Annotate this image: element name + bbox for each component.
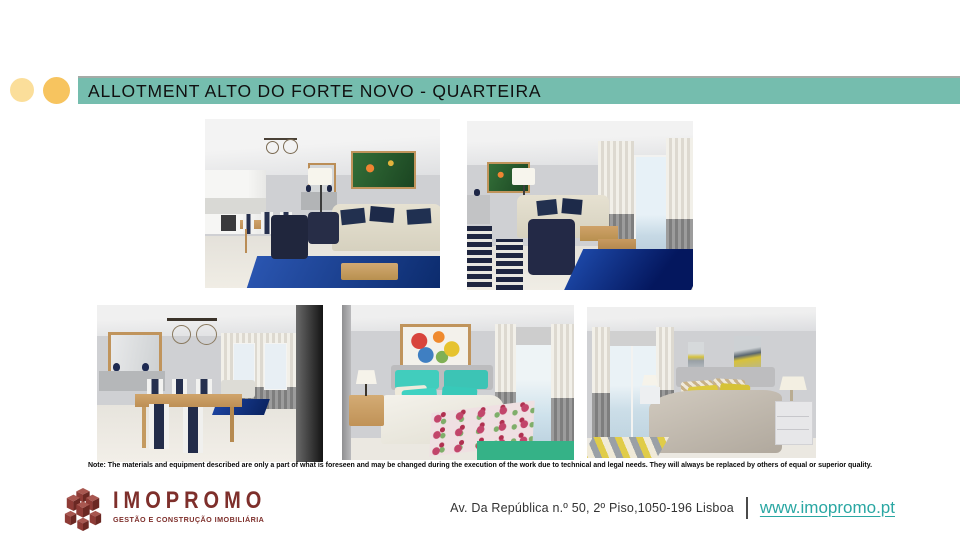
carpet-green bbox=[477, 441, 574, 460]
render-living-room-balcony bbox=[467, 121, 693, 290]
chandelier-orb bbox=[196, 324, 217, 345]
website-link[interactable]: www.imopromo.pt bbox=[760, 498, 895, 518]
logo-text: IMOPROMO GESTÃO E CONSTRUÇÃO IMOBILIÁRIA bbox=[113, 486, 266, 524]
vase bbox=[142, 363, 149, 371]
rug-blue bbox=[563, 249, 693, 290]
wall-painting bbox=[400, 324, 471, 370]
window-balcony bbox=[634, 155, 670, 264]
curtain-right-panel bbox=[666, 138, 693, 219]
curtain-panel bbox=[551, 324, 574, 398]
company-logo: IMOPROMO GESTÃO E CONSTRUÇÃO IMOBILIÁRIA bbox=[62, 486, 266, 537]
vase bbox=[113, 363, 120, 371]
accent-circle-dark bbox=[43, 77, 70, 104]
vase bbox=[474, 189, 480, 196]
table-legs bbox=[245, 229, 247, 253]
wall-painting bbox=[351, 151, 416, 189]
render-bedroom-teal bbox=[342, 305, 574, 460]
curtain-panel bbox=[495, 324, 516, 392]
contact-line: Av. Da República n.º 50, 2º Piso,1050-19… bbox=[450, 497, 895, 519]
pendant-orb bbox=[283, 139, 298, 154]
vase bbox=[306, 185, 311, 192]
dining-chair-front bbox=[183, 407, 203, 453]
sofa-pillow bbox=[341, 207, 366, 225]
page-title: ALLOTMENT ALTO DO FORTE NOVO - QUARTEIRA bbox=[88, 81, 541, 102]
accent-circle-light bbox=[10, 78, 34, 102]
curtain-panel bbox=[656, 327, 674, 390]
table-leg bbox=[142, 407, 146, 448]
floor-lamp-shade bbox=[308, 168, 332, 185]
armchair bbox=[528, 219, 575, 275]
brand-tagline: GESTÃO E CONSTRUÇÃO IMOBILIÁRIA bbox=[113, 515, 266, 524]
divider bbox=[746, 497, 748, 519]
render-dining-room bbox=[97, 305, 323, 462]
ceiling bbox=[587, 307, 816, 331]
dining-chair bbox=[467, 226, 492, 287]
sofa-pillow bbox=[407, 208, 432, 225]
cubes-logo-icon bbox=[62, 486, 104, 537]
curtain-panel-lower bbox=[551, 398, 574, 448]
render-living-room-kitchen bbox=[205, 119, 440, 288]
nightstand-left bbox=[640, 387, 661, 404]
window-frame bbox=[631, 331, 633, 440]
chandelier-orb bbox=[172, 325, 191, 344]
disclaimer-note: Note: The materials and equipment descri… bbox=[0, 462, 960, 469]
curtain-panel bbox=[592, 327, 610, 393]
kitchen-backsplash bbox=[205, 198, 266, 213]
wall-partition bbox=[296, 305, 323, 462]
sideboard bbox=[467, 195, 490, 224]
kitchen-oven-icon bbox=[221, 215, 235, 230]
rug-patterned bbox=[587, 437, 669, 458]
lamp-stem bbox=[365, 384, 367, 396]
floor-lamp-shade bbox=[512, 168, 535, 185]
nightstand-right bbox=[775, 401, 814, 445]
sofa-pillow bbox=[369, 206, 394, 223]
brand-name: IMOPROMO bbox=[113, 488, 266, 515]
render-bedroom-yellow bbox=[587, 307, 816, 458]
lamp-shade bbox=[779, 376, 806, 390]
nightstand-drawer-line bbox=[777, 429, 809, 430]
slide: ALLOTMENT ALTO DO FORTE NOVO - QUARTEIRA bbox=[0, 0, 960, 540]
sofa-pillow bbox=[561, 198, 583, 215]
nightstand bbox=[349, 395, 384, 426]
table-leg bbox=[230, 407, 234, 442]
floor bbox=[97, 405, 323, 462]
chandelier-bar bbox=[167, 318, 217, 321]
company-address: Av. Da República n.º 50, 2º Piso,1050-19… bbox=[450, 501, 734, 515]
dining-chair bbox=[496, 239, 523, 290]
window-door bbox=[264, 343, 286, 391]
lamp-base bbox=[790, 390, 793, 401]
bed-duvet bbox=[649, 390, 782, 453]
nightstand-drawer-line bbox=[777, 416, 809, 417]
vase bbox=[327, 185, 332, 192]
wall-corner bbox=[342, 305, 351, 460]
lamp-shade bbox=[642, 375, 658, 386]
title-bar: ALLOTMENT ALTO DO FORTE NOVO - QUARTEIRA bbox=[78, 76, 960, 104]
sofa-pillow bbox=[536, 199, 558, 216]
roman-blind bbox=[608, 331, 656, 346]
armchair bbox=[308, 212, 339, 244]
pendant-orb bbox=[266, 141, 279, 154]
lamp-shade bbox=[356, 370, 377, 384]
armchair bbox=[271, 215, 309, 259]
coffee-table bbox=[341, 263, 397, 280]
dining-chair-front bbox=[149, 404, 169, 450]
